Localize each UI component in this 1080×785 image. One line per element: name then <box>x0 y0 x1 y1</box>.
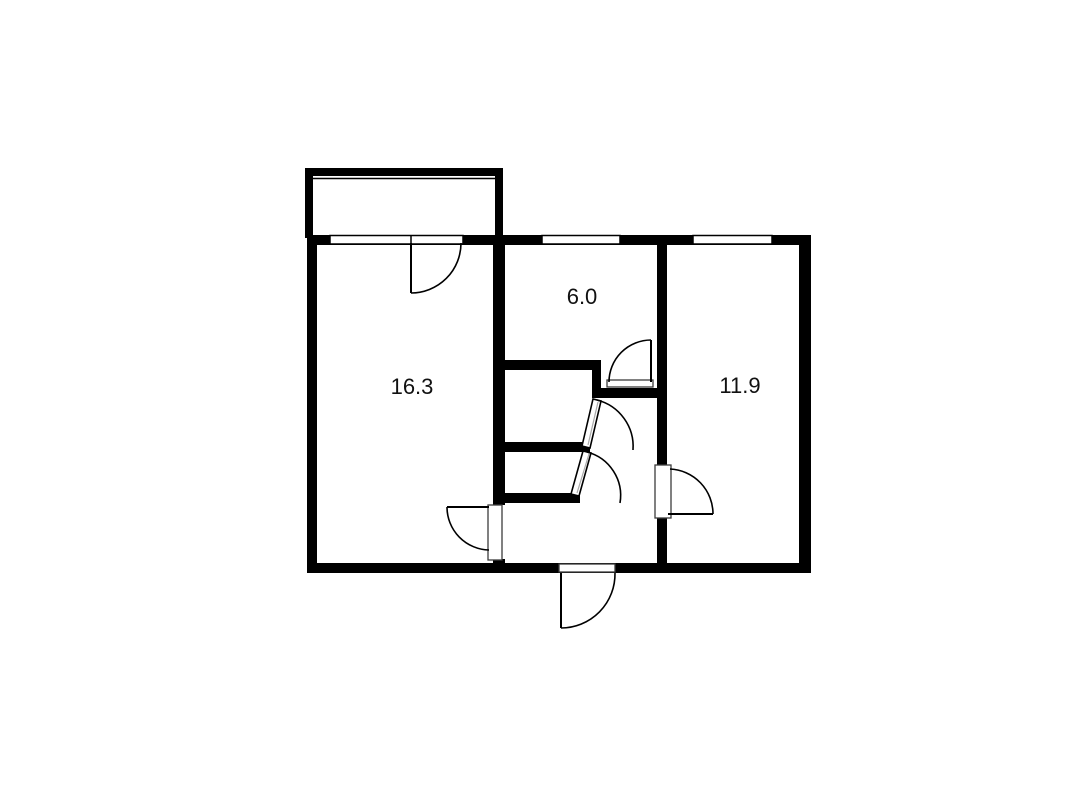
floorplan-drawing: 16.36.011.9 <box>0 0 1080 785</box>
room-kitchen-area-label: 6.0 <box>567 284 598 309</box>
door-arc-living <box>447 507 489 550</box>
door-arc-balcony <box>411 243 461 293</box>
balcony-wall-top <box>305 168 503 176</box>
door-arc-bath-upper <box>597 400 633 450</box>
door-arc-bedroom <box>670 469 713 514</box>
door-sill-entrance <box>559 564 615 572</box>
door-arc-bath-lower <box>587 452 621 503</box>
room-living-area-label: 16.3 <box>391 374 434 399</box>
wall-bath-right-stub <box>592 370 601 398</box>
door-panel-bedroom <box>655 465 671 518</box>
wall-bath-mid <box>493 442 590 452</box>
balcony-wall-left <box>305 168 313 238</box>
wall-bath-bottom <box>493 493 580 503</box>
room-bedroom-area-label: 11.9 <box>719 373 760 398</box>
door-sill-kitchen <box>607 380 653 387</box>
wall-hall-stub <box>601 388 667 398</box>
door-arc-kitchen <box>609 340 651 382</box>
window-living <box>330 236 463 245</box>
wall-bedroom-lower <box>657 518 667 569</box>
balcony-wall-right <box>495 168 503 238</box>
floorplan-page: 16.36.011.9 <box>0 0 1080 785</box>
door-panel-living <box>488 505 502 560</box>
outer-wall-right <box>799 235 811 573</box>
outer-wall-left <box>307 235 317 573</box>
door-leaf-bath-upper <box>582 399 601 448</box>
door-arc-entrance <box>561 573 615 628</box>
window-kitchen <box>542 236 620 245</box>
wall-bedroom-upper <box>657 240 667 465</box>
wall-living-upper <box>493 240 505 505</box>
window-bedroom <box>693 236 772 245</box>
wall-bath-top <box>493 360 601 370</box>
